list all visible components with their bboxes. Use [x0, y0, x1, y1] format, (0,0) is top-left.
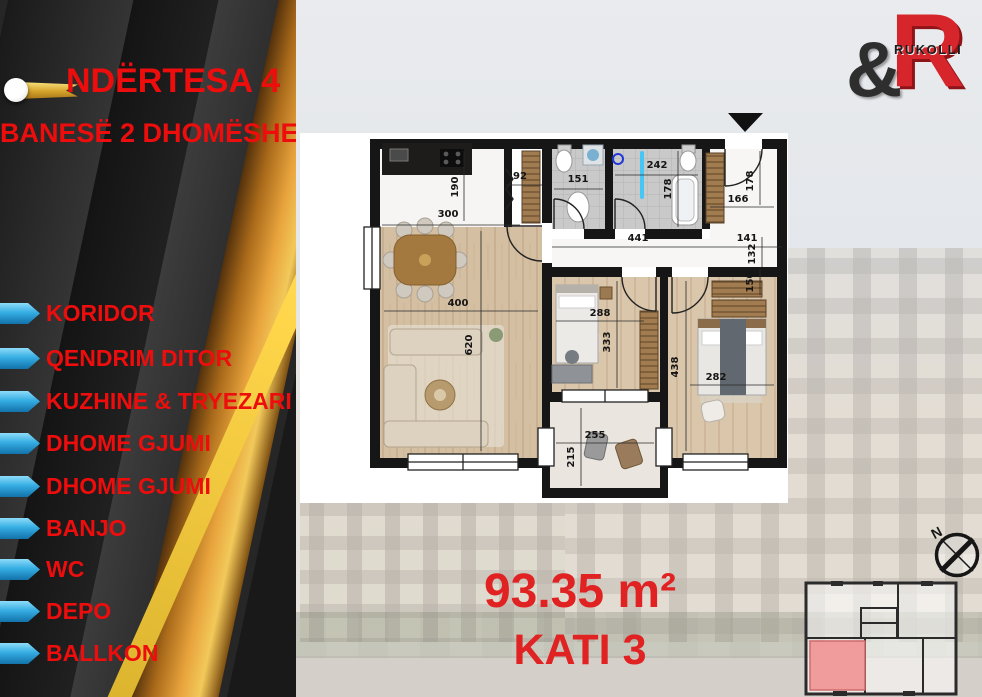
- blue-arrow-icon: [0, 476, 40, 497]
- dim-label: 178: [663, 179, 674, 200]
- compass-icon: N: [928, 522, 982, 584]
- room-label: QENDRIM DITOR: [46, 345, 232, 372]
- dim-label: 141: [737, 233, 758, 244]
- dim-label: 178: [745, 171, 756, 192]
- sidebar: NDËRTESA 4 BANESË 2 DHOMËSHE KORIDOR QEN…: [0, 0, 296, 697]
- blue-arrow-icon: [0, 303, 40, 324]
- room-label: WC: [46, 556, 84, 583]
- room-label: DHOME GJUMI: [46, 473, 211, 500]
- blue-arrow-icon: [0, 433, 40, 454]
- dim-label: 242: [647, 160, 668, 171]
- dim-label: 400: [448, 298, 469, 309]
- ribbon-dot-icon: [4, 78, 28, 102]
- apartment-subtitle: BANESË 2 DHOMËSHE: [0, 118, 296, 149]
- room-list-item: WC: [0, 556, 296, 588]
- blue-arrow-icon: [0, 518, 40, 539]
- apartment-area: 93.35 m²: [400, 564, 760, 619]
- dim-label: 132: [747, 244, 758, 265]
- page: NDËRTESA 4 BANESË 2 DHOMËSHE KORIDOR QEN…: [0, 0, 982, 697]
- room-list-item: KORIDOR: [0, 300, 296, 332]
- dim-label: 282: [706, 372, 727, 383]
- dim-label: 438: [670, 357, 681, 378]
- company-logo: & R RUKOLLI: [838, 0, 982, 115]
- dining-table: [383, 218, 467, 302]
- room-list-item: BANJO: [0, 515, 296, 547]
- room-list-item: DHOME GJUMI: [0, 473, 296, 505]
- room-list-item: KUZHINE & TRYEZARI: [0, 388, 296, 420]
- dim-label: 150: [745, 272, 756, 293]
- dim-label: 300: [438, 209, 459, 220]
- room-label: KUZHINE & TRYEZARI: [46, 388, 292, 415]
- blue-arrow-icon: [0, 391, 40, 412]
- room-label: BANJO: [46, 515, 127, 542]
- dim-label: 333: [602, 332, 613, 353]
- dim-label: 166: [728, 194, 749, 205]
- dim-label: 620: [464, 335, 475, 356]
- dim-label: 441: [628, 233, 649, 244]
- room-list-item: DEPO: [0, 598, 296, 630]
- highlighted-unit: [810, 641, 865, 690]
- dim-label: 288: [590, 308, 611, 319]
- dim-label: 190: [450, 177, 461, 198]
- room-label: KORIDOR: [46, 300, 155, 327]
- living-room-furniture: [384, 325, 504, 447]
- dim-label: 215: [566, 447, 577, 468]
- dim-label: 255: [585, 430, 606, 441]
- floor-number: KATI 3: [400, 626, 760, 675]
- entrance-arrow-icon: [728, 113, 763, 132]
- logo-brand-name: RUKOLLI: [894, 42, 962, 57]
- floor-plan-svg: 3001909215124217816617844114113215040062…: [300, 111, 788, 503]
- room-list-item: QENDRIM DITOR: [0, 345, 296, 377]
- room-label: DEPO: [46, 598, 111, 625]
- room-list-item: DHOME GJUMI: [0, 430, 296, 462]
- blue-arrow-icon: [0, 559, 40, 580]
- blue-arrow-icon: [0, 643, 40, 664]
- key-plan: [803, 580, 959, 697]
- room-label: DHOME GJUMI: [46, 430, 211, 457]
- blue-arrow-icon: [0, 348, 40, 369]
- room-label: BALLKON: [46, 640, 158, 667]
- kitchen-counter: [382, 143, 472, 175]
- dim-label: 92: [513, 171, 527, 182]
- building-title: NDËRTESA 4: [66, 62, 296, 101]
- dim-label: 151: [568, 174, 589, 185]
- room-list-item: BALLKON: [0, 640, 296, 672]
- blue-arrow-icon: [0, 601, 40, 622]
- floor-plan: 3001909215124217816617844114113215040062…: [300, 111, 788, 503]
- logo-ampersand: &: [846, 24, 902, 115]
